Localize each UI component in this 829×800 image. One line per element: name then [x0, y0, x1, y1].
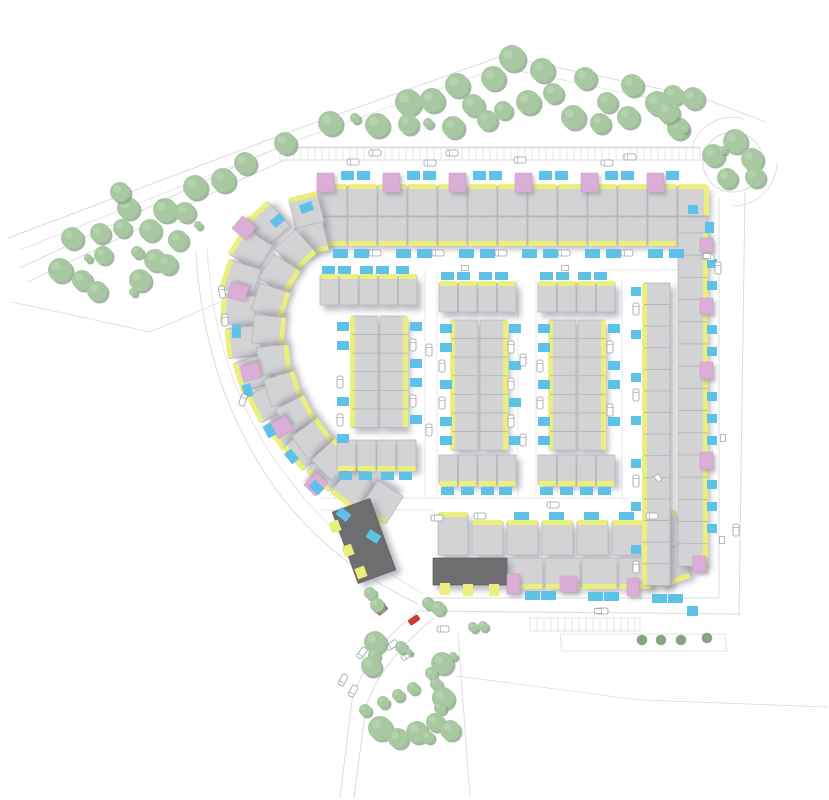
- car-body: [426, 344, 432, 356]
- front-garden-strip: [498, 281, 516, 286]
- house: [357, 440, 376, 471]
- front-garden-strip: [619, 241, 647, 246]
- tree-highlight: [480, 623, 484, 627]
- house-footprint: [408, 186, 437, 216]
- house-footprint: [597, 455, 616, 484]
- parking-space: [322, 266, 335, 274]
- tree-icon: [561, 105, 588, 132]
- house-footprint: [378, 217, 407, 244]
- pink-unit: [383, 173, 400, 192]
- tree-highlight: [429, 716, 436, 723]
- parking-space: [631, 287, 641, 296]
- front-garden-strip: [469, 184, 497, 189]
- car-icon: [621, 250, 633, 256]
- front-garden-strip: [642, 478, 647, 499]
- front-garden-strip: [321, 274, 339, 279]
- parking-space: [341, 171, 354, 180]
- tree-highlight: [133, 273, 141, 281]
- car-icon: [624, 154, 636, 160]
- parking-space: [423, 171, 436, 180]
- tree-canopy: [530, 58, 554, 82]
- car-body: [369, 250, 381, 256]
- tree-canopy: [422, 731, 434, 743]
- car-body: [646, 513, 658, 519]
- tree-highlight: [443, 723, 451, 731]
- tree-canopy: [175, 202, 195, 222]
- tree-highlight: [424, 599, 429, 604]
- front-garden-strip: [450, 395, 455, 413]
- tree-canopy: [449, 652, 457, 660]
- parking-space: [538, 343, 550, 352]
- front-garden-strip: [601, 376, 606, 394]
- house-footprint: [578, 394, 604, 413]
- house-footprint: [644, 434, 670, 456]
- parking-space: [407, 171, 420, 180]
- parking-space: [538, 436, 550, 445]
- house: [648, 217, 677, 246]
- house: [577, 520, 608, 555]
- house-footprint: [452, 320, 478, 339]
- car-icon: [348, 684, 359, 697]
- utility-meter-icon: [704, 254, 711, 259]
- car-body: [607, 341, 613, 353]
- tree-canopy: [388, 728, 408, 748]
- tree-canopy: [274, 132, 296, 154]
- house-footprint: [558, 283, 577, 312]
- house-footprint: [320, 276, 339, 305]
- house-footprint: [380, 353, 406, 372]
- tree-highlight: [546, 86, 554, 94]
- house: [380, 409, 408, 428]
- house-footprint: [528, 217, 557, 244]
- car-icon: [446, 150, 458, 156]
- car-body: [431, 515, 443, 521]
- parking-space: [648, 249, 663, 258]
- parking-space: [541, 591, 556, 600]
- house: [377, 440, 396, 471]
- house: [459, 455, 478, 486]
- parking-space: [440, 436, 452, 445]
- parking-space: [584, 512, 599, 520]
- house: [320, 274, 339, 305]
- house-footprint: [480, 339, 506, 358]
- car-body: [733, 524, 739, 536]
- front-garden-strip: [459, 481, 477, 486]
- tree-highlight: [93, 226, 101, 234]
- tree-canopy: [350, 113, 360, 123]
- house-footprint: [480, 357, 506, 376]
- tree-highlight: [435, 656, 443, 664]
- house-footprint: [678, 322, 706, 344]
- car-body: [439, 397, 445, 409]
- utility-meter-icon: [562, 266, 569, 271]
- tree-highlight: [485, 70, 494, 79]
- car-body: [624, 154, 636, 160]
- house-footprint: [357, 440, 376, 469]
- tree-icon: [745, 167, 768, 190]
- parking-space: [540, 487, 553, 495]
- car-body: [348, 684, 359, 697]
- car-icon: [424, 160, 436, 166]
- car-icon: [520, 434, 526, 446]
- car-body: [607, 404, 613, 416]
- house-footprint: [644, 283, 670, 305]
- house: [642, 348, 670, 370]
- car-icon: [338, 673, 349, 686]
- utility-meter-icon: [720, 537, 725, 544]
- parking-space: [339, 472, 352, 480]
- house-footprint: [468, 186, 497, 216]
- tree-highlight: [470, 624, 474, 628]
- tree-icon: [183, 175, 210, 202]
- front-garden-strip: [548, 395, 553, 413]
- house-footprint: [478, 455, 497, 484]
- car-icon: [337, 414, 343, 426]
- pink-unit: [647, 173, 664, 192]
- front-garden-strip: [642, 521, 647, 542]
- house-footprint: [380, 316, 406, 335]
- parking-space: [631, 330, 641, 339]
- car-body: [474, 513, 486, 519]
- car-icon: [547, 502, 559, 508]
- house-footprint: [352, 335, 378, 354]
- parking-space: [457, 272, 470, 280]
- car-body: [520, 434, 526, 446]
- tree-highlight: [578, 71, 586, 79]
- parking-space: [459, 249, 474, 258]
- parking-space: [538, 417, 550, 426]
- house: [578, 376, 606, 395]
- house-footprint: [498, 283, 517, 312]
- house-footprint: [352, 316, 378, 335]
- front-garden-strip: [642, 392, 647, 413]
- tree-icon: [157, 254, 180, 277]
- road-line: [458, 633, 470, 798]
- front-garden-strip: [613, 520, 643, 525]
- house: [538, 281, 557, 312]
- front-garden-strip: [578, 281, 596, 286]
- parking-space: [631, 416, 641, 425]
- house: [450, 394, 478, 413]
- tree-highlight: [433, 603, 438, 608]
- front-garden-strip: [578, 481, 596, 486]
- front-garden-strip: [503, 395, 508, 413]
- tree-icon: [359, 704, 374, 719]
- tree-canopy: [48, 258, 72, 282]
- front-garden-strip: [399, 274, 417, 279]
- parking-space: [705, 222, 714, 233]
- parking-space: [549, 512, 564, 520]
- front-garden-strip: [398, 466, 416, 471]
- parking-space: [543, 249, 558, 258]
- front-garden-strip: [409, 241, 437, 246]
- tree-icon: [274, 132, 299, 157]
- tree-highlight: [364, 659, 372, 667]
- tree-highlight: [480, 113, 488, 121]
- pink-unit: [693, 556, 706, 572]
- house: [578, 432, 606, 451]
- shrub-icon: [702, 633, 712, 643]
- car-body: [633, 303, 639, 315]
- house: [480, 394, 508, 413]
- parking-space: [410, 322, 422, 331]
- house-footprint: [459, 283, 478, 312]
- tree-canopy: [423, 118, 433, 128]
- tree-highlight: [600, 95, 608, 103]
- tree-highlight: [322, 115, 331, 124]
- house: [478, 455, 497, 486]
- house-footprint: [644, 305, 670, 327]
- front-garden-strip: [558, 481, 576, 486]
- tree-icon: [370, 598, 387, 615]
- front-garden-strip: [503, 339, 508, 357]
- front-garden-strip: [539, 481, 557, 486]
- tree-icon: [717, 168, 740, 191]
- car-icon: [347, 159, 359, 165]
- house: [439, 455, 458, 486]
- tree-canopy: [398, 114, 418, 134]
- tree-highlight: [85, 255, 88, 258]
- car-body: [337, 376, 343, 388]
- house-footprint: [578, 320, 604, 339]
- tree-highlight: [427, 669, 432, 674]
- front-garden-strip: [403, 391, 408, 409]
- parking-space: [631, 502, 641, 511]
- house: [642, 391, 670, 413]
- front-garden-strip: [350, 372, 355, 390]
- front-garden-strip: [459, 281, 477, 286]
- tree-highlight: [720, 171, 728, 179]
- parking-space: [588, 592, 603, 601]
- parking-space: [652, 594, 667, 603]
- tree-highlight: [160, 257, 168, 265]
- house: [380, 316, 408, 335]
- tree-highlight: [368, 635, 376, 643]
- tree-icon: [597, 92, 620, 115]
- parking-space: [605, 171, 618, 180]
- house-footprint: [648, 217, 677, 244]
- parking-space: [381, 472, 394, 480]
- tree-highlight: [75, 273, 83, 281]
- house-footprint: [558, 455, 577, 484]
- house: [528, 184, 557, 216]
- parking-space: [578, 272, 591, 280]
- tree-highlight: [409, 684, 414, 689]
- tree-highlight: [436, 704, 441, 709]
- tree-icon: [131, 246, 146, 261]
- tree-highlight: [187, 179, 196, 188]
- parking-space: [461, 487, 474, 495]
- front-garden-strip: [350, 410, 355, 428]
- front-garden-strip: [469, 241, 497, 246]
- house-footprint: [359, 276, 378, 305]
- house-footprint: [452, 413, 478, 432]
- car-icon: [474, 513, 486, 519]
- tree-highlight: [450, 653, 453, 656]
- house-footprint: [678, 388, 706, 410]
- tree-canopy: [359, 704, 371, 716]
- tree-canopy: [434, 702, 446, 714]
- pink-unit: [700, 238, 713, 252]
- parking-space: [619, 512, 634, 520]
- parking-space: [555, 171, 568, 180]
- front-garden-strip: [529, 241, 557, 246]
- house-footprint: [528, 186, 557, 216]
- house: [439, 281, 458, 312]
- tree-icon: [481, 66, 508, 93]
- tree-canopy: [680, 125, 688, 133]
- tree-canopy: [543, 83, 563, 103]
- house: [538, 455, 557, 486]
- house-footprint: [618, 217, 647, 244]
- house-footprint: [644, 391, 670, 413]
- house: [558, 455, 577, 486]
- house: [642, 542, 670, 564]
- house: [359, 274, 378, 305]
- tree-icon: [420, 88, 447, 115]
- car-icon: [369, 150, 381, 156]
- front-garden-strip: [649, 241, 677, 246]
- house: [548, 413, 576, 432]
- parking-space: [376, 266, 389, 274]
- house: [642, 521, 670, 543]
- tree-canopy: [364, 587, 376, 599]
- tree-highlight: [432, 680, 437, 685]
- front-garden-strip: [338, 466, 356, 471]
- house: [379, 274, 398, 305]
- parking-space: [707, 414, 717, 423]
- house-footprint: [452, 432, 478, 451]
- house: [450, 376, 478, 395]
- car-icon: [369, 250, 381, 256]
- front-garden-strip: [350, 354, 355, 372]
- car-body: [508, 378, 514, 390]
- tree-canopy: [139, 219, 161, 241]
- tree-icon: [590, 113, 613, 136]
- tree-canopy: [370, 598, 384, 612]
- car-body: [426, 424, 432, 436]
- parking-space: [473, 171, 486, 180]
- house: [548, 339, 576, 358]
- tree-highlight: [394, 691, 399, 696]
- tree-canopy: [365, 113, 389, 137]
- parking-space: [359, 472, 372, 480]
- front-garden-strip: [340, 274, 358, 279]
- house: [678, 522, 708, 544]
- tree-highlight: [133, 248, 138, 253]
- parking-space: [598, 487, 611, 495]
- car-icon: [495, 250, 507, 256]
- front-garden-strip: [503, 414, 508, 432]
- tree-highlight: [397, 643, 402, 648]
- house: [408, 217, 437, 246]
- house-footprint: [352, 372, 378, 391]
- car-icon: [537, 397, 543, 409]
- house-footprint: [678, 277, 706, 299]
- tree-icon: [61, 227, 86, 252]
- tree-canopy: [194, 221, 202, 229]
- house-footprint: [582, 558, 617, 587]
- parking-space: [481, 487, 494, 495]
- house: [478, 281, 497, 312]
- parking-space: [621, 171, 634, 180]
- tree-highlight: [425, 120, 429, 124]
- tree-canopy: [741, 148, 763, 170]
- front-garden-strip: [558, 281, 576, 286]
- tree-highlight: [706, 148, 714, 156]
- parking-space: [669, 249, 684, 258]
- car-icon: [633, 303, 639, 315]
- house: [678, 411, 708, 433]
- parking-space: [410, 415, 422, 424]
- house-footprint: [498, 455, 517, 484]
- house: [618, 217, 647, 246]
- house-footprint: [588, 217, 617, 244]
- tree-canopy: [157, 254, 177, 274]
- house: [450, 339, 478, 358]
- car-icon: [432, 250, 444, 256]
- car-body: [508, 341, 514, 353]
- house-footprint: [478, 283, 497, 312]
- parking-space: [707, 480, 717, 489]
- parking-space: [480, 249, 495, 258]
- house-footprint: [644, 521, 670, 543]
- house: [642, 369, 670, 391]
- front-garden-strip: [403, 354, 408, 372]
- tree-highlight: [238, 156, 246, 164]
- house: [597, 281, 616, 312]
- house: [450, 357, 478, 376]
- front-garden-strip: [473, 520, 503, 525]
- parking-space: [399, 472, 412, 480]
- house: [380, 335, 408, 354]
- yellow-entrance: [463, 584, 473, 596]
- front-garden-strip: [642, 413, 647, 434]
- tree-icon: [194, 221, 205, 232]
- house: [472, 520, 503, 555]
- buildings-layer: [219, 184, 709, 589]
- car-body: [424, 160, 436, 166]
- house-footprint: [558, 217, 587, 244]
- tree-highlight: [686, 91, 694, 99]
- parking-space: [495, 272, 508, 280]
- site-plan-canvas: [0, 0, 829, 800]
- parking-space: [707, 502, 717, 511]
- parking-bay-strip: [280, 148, 700, 160]
- house-footprint: [644, 564, 670, 586]
- front-garden-strip: [578, 520, 608, 525]
- front-garden-strip: [439, 241, 467, 246]
- tree-highlight: [52, 262, 61, 271]
- parking-space: [337, 434, 349, 443]
- tree-highlight: [520, 94, 529, 103]
- tree-highlight: [399, 93, 409, 103]
- tree-icon: [543, 83, 566, 106]
- house: [350, 390, 378, 409]
- house-footprint: [348, 217, 377, 244]
- parking-space: [232, 325, 241, 338]
- house: [450, 320, 478, 339]
- house-footprint: [480, 376, 506, 395]
- car-body: [520, 354, 526, 366]
- parking-space: [337, 341, 349, 350]
- tree-highlight: [681, 126, 684, 129]
- house-footprint: [550, 413, 576, 432]
- tree-canopy: [425, 667, 437, 679]
- house: [450, 413, 478, 432]
- house: [337, 440, 356, 471]
- house-footprint: [480, 320, 506, 339]
